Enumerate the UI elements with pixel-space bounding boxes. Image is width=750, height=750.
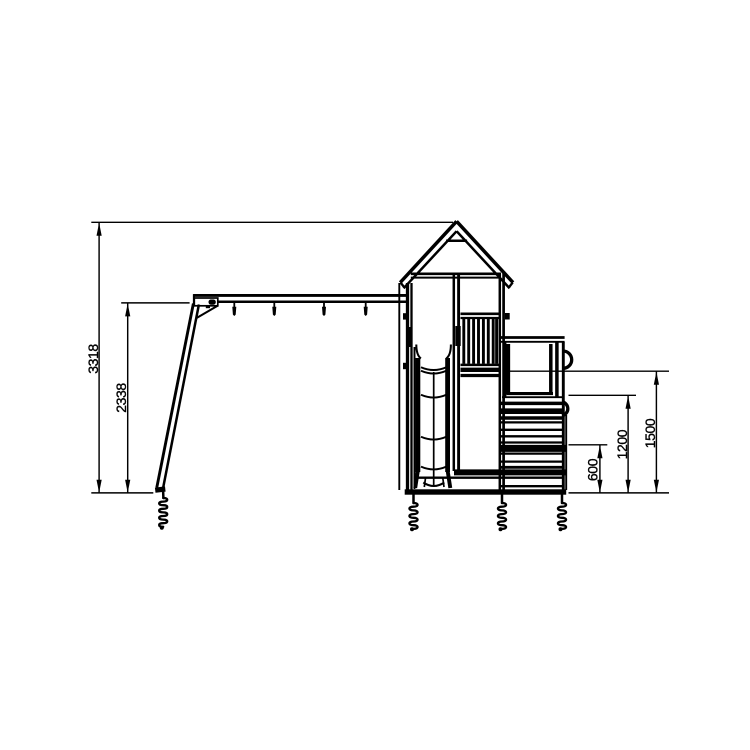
svg-text:600: 600 (584, 458, 600, 481)
svg-text:1500: 1500 (642, 418, 658, 448)
svg-text:1200: 1200 (614, 429, 630, 459)
svg-text:2338: 2338 (113, 383, 129, 413)
svg-text:3318: 3318 (85, 344, 101, 374)
